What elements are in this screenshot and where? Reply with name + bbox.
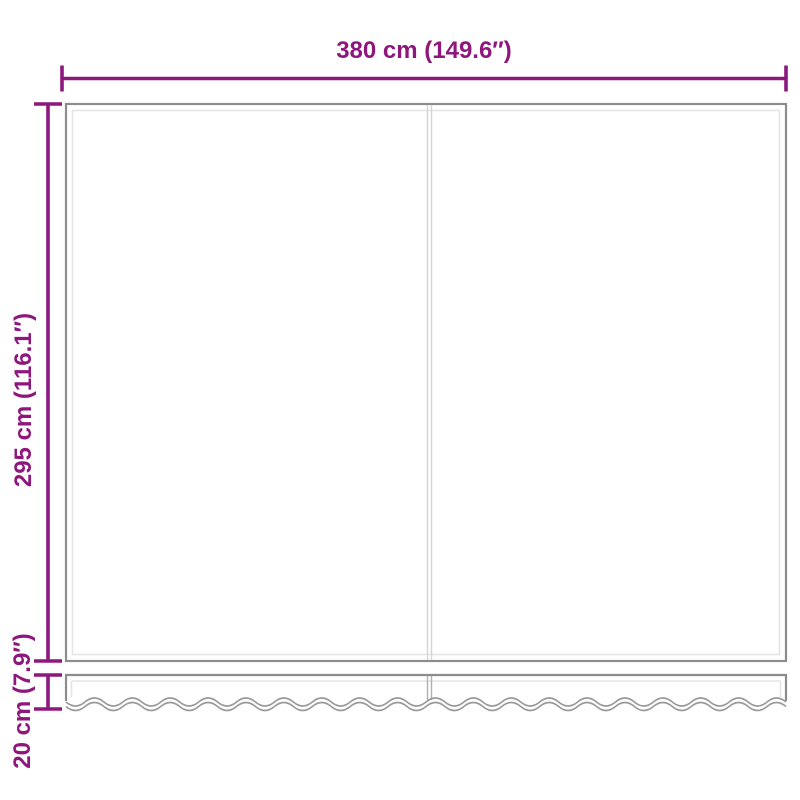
height-dimension [34,104,62,661]
width-dimension-label: 380 cm (149.6″) [62,38,786,64]
valance-center-divider [428,676,432,700]
scallop-wave-upper [66,698,786,706]
fabric-panel [66,104,786,661]
width-dimension [62,66,786,92]
scallop-wave-lower [66,703,786,711]
valance-scalloped-hem [66,698,786,711]
valance-inner-seam [72,681,781,697]
valance-height-dimension-label: 20 cm (7.9″) [10,633,36,769]
dimension-diagram: 380 cm (149.6″) 295 cm (116.1″) 20 cm (7… [0,0,800,800]
fabric-panel-outline [66,104,786,661]
valance [65,675,787,701]
height-dimension-label: 295 cm (116.1″) [11,313,37,487]
valance-height-dimension [34,675,62,709]
diagram-artwork [0,0,800,800]
